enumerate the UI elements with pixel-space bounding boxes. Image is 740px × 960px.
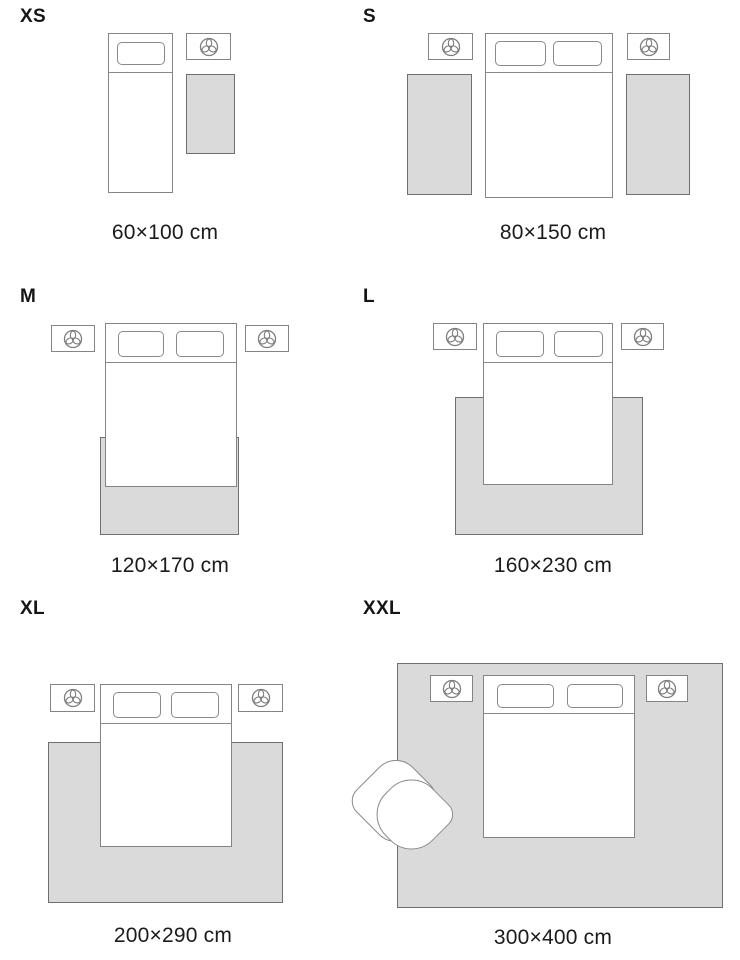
pillow <box>567 684 623 708</box>
panel-xxl: XXL <box>360 592 740 960</box>
dimension-label-xxl: 300×400 cm <box>393 926 713 950</box>
dimension-label-xs: 60×100 cm <box>0 221 330 245</box>
panel-m: M <box>0 280 370 592</box>
rug-s-left <box>407 74 472 195</box>
pillow <box>171 692 219 718</box>
size-tag-s: S <box>363 6 376 28</box>
size-tag-xl: XL <box>20 598 45 620</box>
pillow <box>553 41 602 66</box>
nightstand-left <box>430 675 473 702</box>
plant-icon <box>440 36 462 58</box>
bed-headboard <box>101 685 231 724</box>
pillow <box>113 692 161 718</box>
pillow <box>117 42 165 65</box>
bed-headboard <box>484 676 634 714</box>
dimension-label-l: 160×230 cm <box>393 554 713 578</box>
nightstand-left <box>428 33 473 60</box>
single-bed <box>108 33 173 193</box>
plant-icon <box>638 36 660 58</box>
rug-size-guide: XS 60×100 cm S <box>0 0 740 960</box>
double-bed <box>105 323 237 487</box>
plant-icon <box>441 678 463 700</box>
nightstand-left <box>50 684 95 712</box>
panel-xl: XL <box>0 592 370 960</box>
plant-icon <box>250 687 272 709</box>
plant-icon <box>62 687 84 709</box>
panel-l: L <box>360 280 740 592</box>
nightstand-left <box>433 323 477 350</box>
nightstand-right <box>621 323 664 350</box>
double-bed <box>483 675 635 838</box>
dimension-label-m: 120×170 cm <box>0 554 340 578</box>
bed-headboard <box>106 324 236 363</box>
nightstand-right <box>238 684 283 712</box>
pillow <box>554 331 603 357</box>
rug-s-right <box>626 74 690 195</box>
plant-icon <box>632 326 654 348</box>
nightstand <box>186 33 231 60</box>
plant-icon <box>656 678 678 700</box>
pillow <box>496 331 544 357</box>
rug-xs <box>186 74 235 154</box>
size-tag-xxl: XXL <box>363 598 401 620</box>
pillow <box>118 331 164 357</box>
nightstand-right <box>646 675 688 702</box>
nightstand-right <box>245 325 289 352</box>
double-bed <box>485 33 613 198</box>
plant-icon <box>198 36 220 58</box>
plant-icon <box>256 328 278 350</box>
dimension-label-s: 80×150 cm <box>393 221 713 245</box>
bed-headboard <box>484 324 612 363</box>
pillow <box>176 331 224 357</box>
size-tag-xs: XS <box>20 6 46 28</box>
nightstand-right <box>627 33 670 60</box>
double-bed <box>483 323 613 485</box>
nightstand-left <box>51 325 95 352</box>
bed-headboard <box>486 34 612 73</box>
panel-xs: XS 60×100 cm <box>0 0 370 280</box>
plant-icon <box>444 326 466 348</box>
bed-headboard <box>109 34 172 73</box>
panel-s: S <box>360 0 740 280</box>
pillow <box>495 41 546 66</box>
size-tag-l: L <box>363 286 375 308</box>
plant-icon <box>62 328 84 350</box>
dimension-label-xl: 200×290 cm <box>0 924 346 948</box>
size-tag-m: M <box>20 286 36 308</box>
pillow <box>497 684 554 708</box>
double-bed <box>100 684 232 847</box>
